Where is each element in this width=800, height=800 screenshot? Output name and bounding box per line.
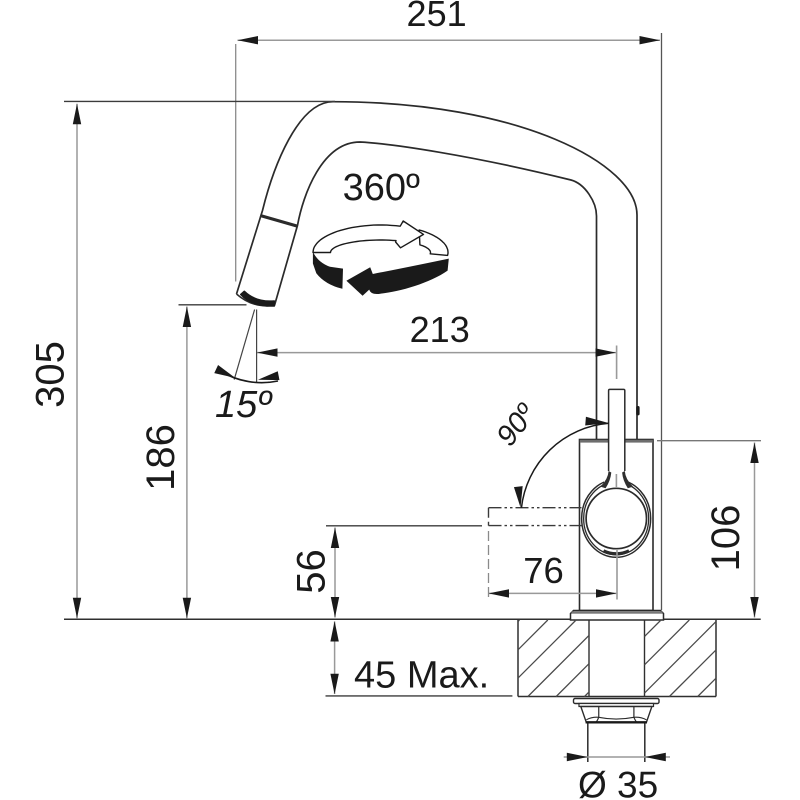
svg-text:305: 305: [29, 341, 73, 408]
svg-text:15º: 15º: [215, 384, 273, 426]
svg-text:76: 76: [523, 550, 564, 591]
svg-text:213: 213: [410, 309, 470, 350]
svg-text:45 Max.: 45 Max.: [354, 655, 489, 697]
svg-text:Ø 35: Ø 35: [578, 765, 658, 800]
svg-text:106: 106: [704, 505, 748, 572]
svg-text:251: 251: [407, 0, 467, 34]
svg-text:56: 56: [290, 549, 334, 594]
svg-text:186: 186: [139, 424, 183, 491]
svg-text:360º: 360º: [343, 167, 420, 209]
